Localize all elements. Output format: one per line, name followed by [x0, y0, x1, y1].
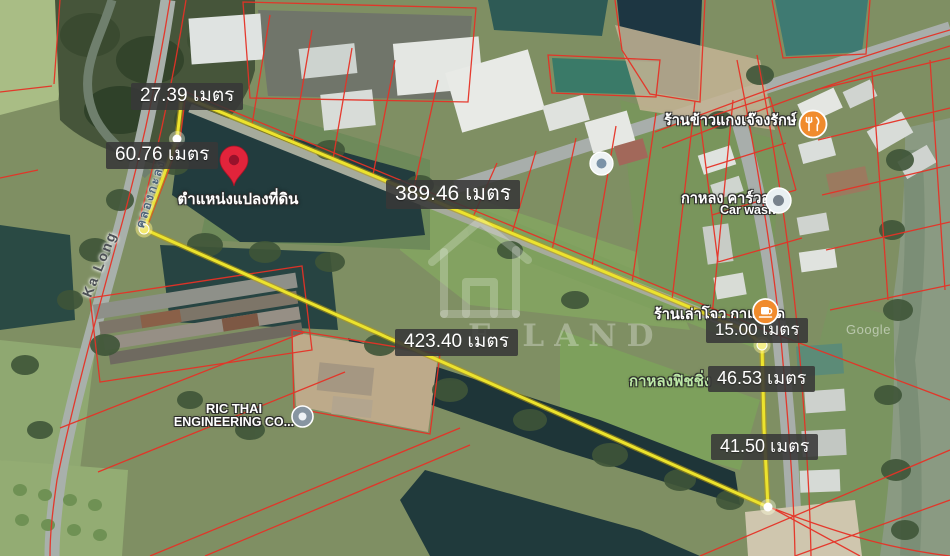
fishing-label[interactable]: กาหลงฟิชชิ่ง [629, 369, 711, 393]
coffee-icon[interactable] [752, 298, 779, 330]
restaurant-icon[interactable] [798, 109, 828, 144]
map-attribution: Google [846, 322, 891, 337]
measurement-chip-south: 423.40 เมตร [395, 329, 518, 356]
measurement-chip-east-upper: 46.53 เมตร [708, 366, 815, 392]
company-label-line1: RIC THAI [170, 402, 298, 416]
satellite-map[interactable]: E LAND Google 27.39 เมตร 60.76 เมตร 389.… [0, 0, 950, 556]
measurement-chip-east-lower: 41.50 เมตร [711, 434, 818, 460]
company-label-line2: ENGINEERING CO... [170, 416, 298, 429]
company-label[interactable]: RIC THAI ENGINEERING CO... [170, 402, 298, 429]
pin-label: ตำแหน่งแปลงที่ดิน [168, 187, 308, 211]
unnamed-place-icon[interactable] [589, 151, 614, 181]
measurement-chip-west: 60.76 เมตร [106, 142, 218, 169]
measurement-chip-north: 389.46 เมตร [386, 180, 520, 209]
car-wash-icon[interactable] [765, 187, 792, 219]
location-pin[interactable] [212, 138, 256, 188]
restaurant-label[interactable]: ร้านข้าวแกงเจ๊จงรักษ์ [664, 109, 796, 132]
business-icon[interactable] [291, 405, 314, 433]
measurement-chip-northwest-top: 27.39 เมตร [131, 83, 243, 110]
